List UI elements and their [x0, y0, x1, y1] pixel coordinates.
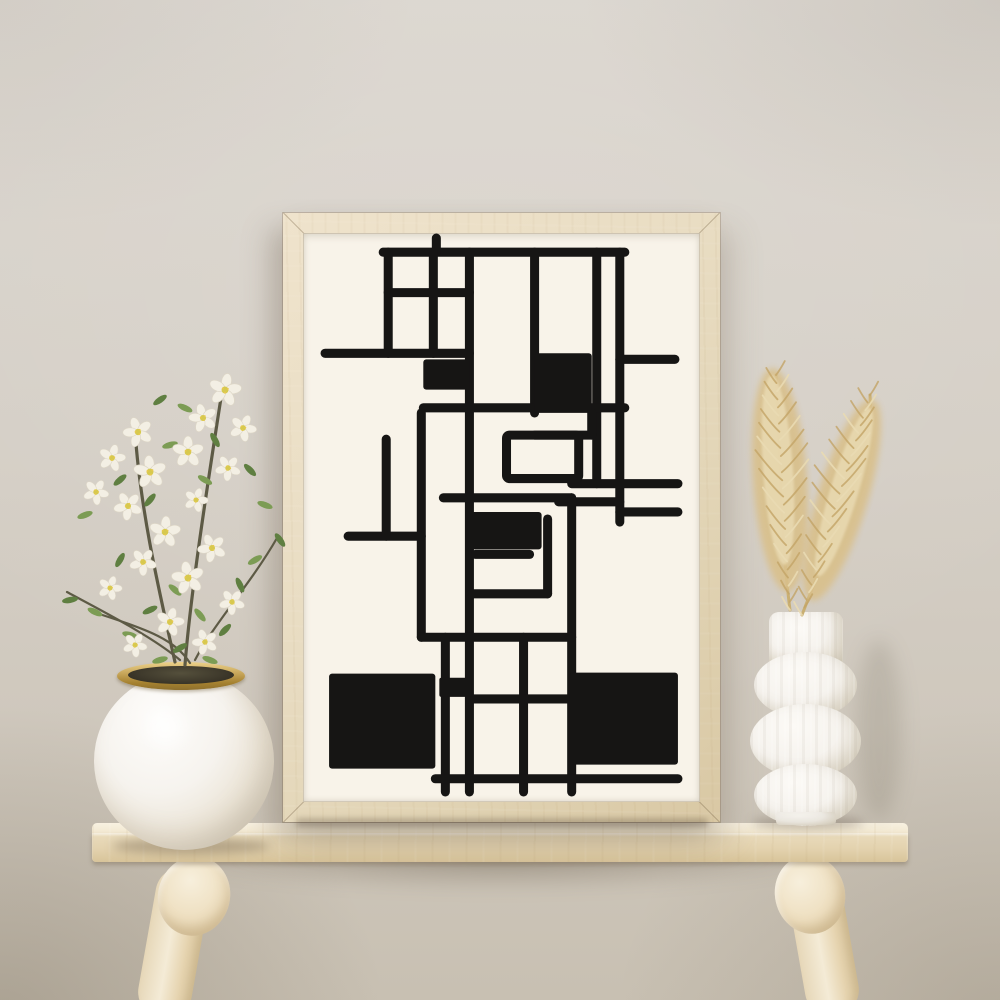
sphere-vase-highlight [140, 696, 192, 760]
leaf [141, 604, 158, 616]
blossom-flower [209, 449, 246, 486]
leaf [112, 472, 128, 487]
leaf [234, 576, 246, 593]
blossom-flower [118, 412, 158, 451]
leaf [151, 655, 168, 665]
blossom-flower [213, 584, 250, 621]
blossom-flower [205, 371, 245, 410]
blossom-flower [95, 441, 130, 475]
pampas-feather [870, 382, 878, 395]
blossom-flower [78, 474, 115, 510]
blossom-branches [55, 360, 315, 690]
frame-miter-joint [698, 213, 720, 235]
leaf [242, 462, 258, 478]
pampas-grass [690, 320, 920, 630]
blossom-flower [188, 625, 222, 659]
leaf [201, 654, 218, 665]
pampas-feather [858, 388, 867, 402]
leaf [152, 393, 169, 407]
leaf [192, 607, 207, 623]
sphere-vase [94, 672, 274, 850]
ribbed-vase [748, 612, 863, 825]
scene [0, 0, 1000, 1000]
leaf [142, 492, 157, 508]
leaf [113, 552, 126, 569]
blossom-flowers [78, 371, 262, 662]
frame-contact-shadow [296, 818, 708, 827]
leaf [76, 509, 93, 520]
art-solid-blocks [329, 353, 678, 768]
picture-frame [283, 213, 720, 822]
blossom-flower [171, 436, 204, 468]
leaf [256, 499, 273, 510]
pampas-feather [794, 602, 802, 615]
ribbed-vase-base [776, 812, 836, 825]
leaf [217, 622, 233, 638]
art-print-paper [303, 233, 700, 802]
frame-miter-joint [283, 213, 305, 235]
blossom-flower [94, 572, 127, 604]
leaf [176, 402, 193, 414]
blossom-flower [224, 409, 262, 446]
leaf [197, 473, 214, 486]
blossom-flower [147, 515, 183, 549]
abstract-line-artwork [303, 233, 700, 802]
